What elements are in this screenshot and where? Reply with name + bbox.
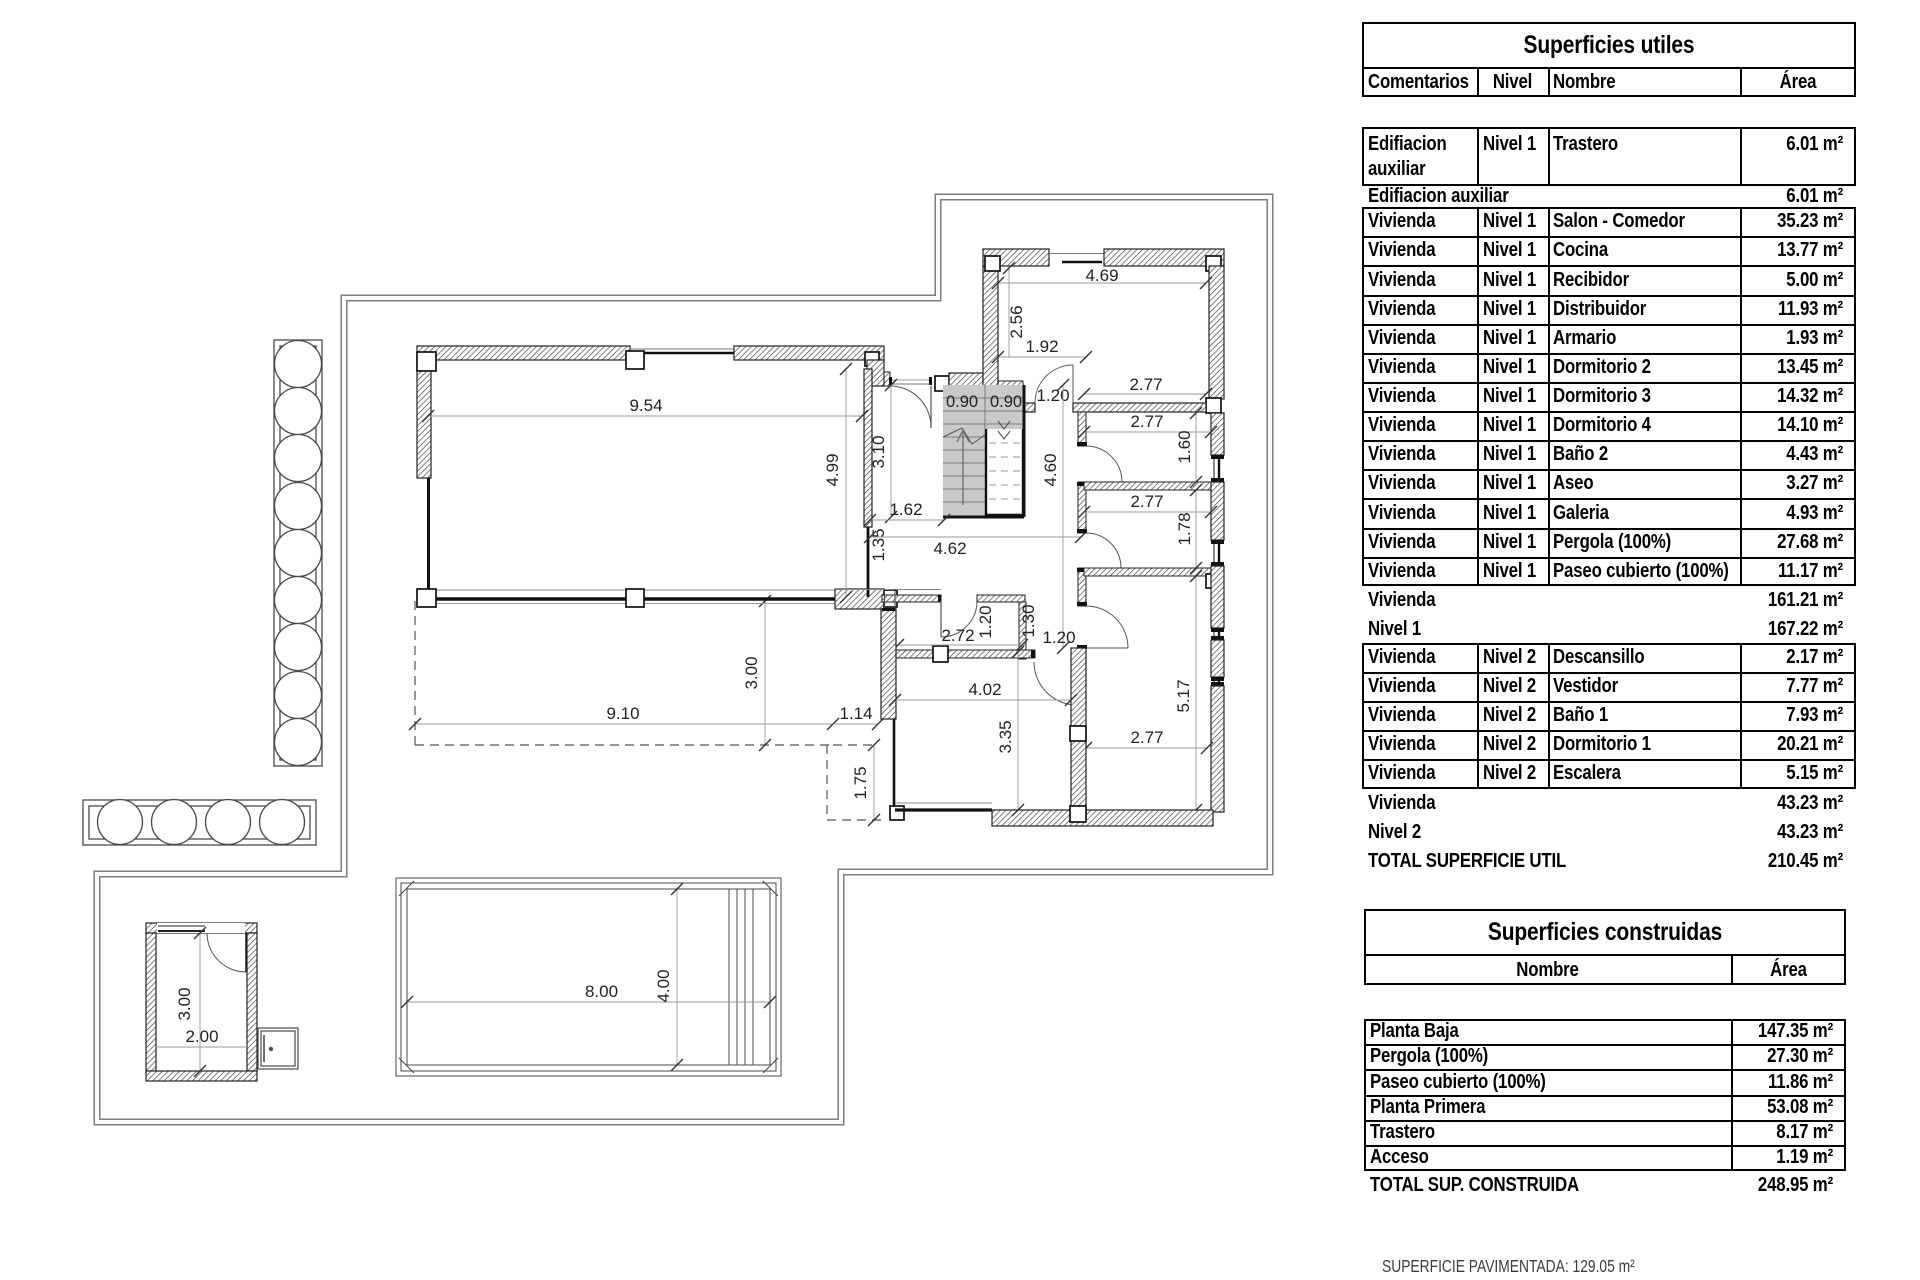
svg-text:4.69: 4.69 — [1085, 266, 1118, 285]
svg-text:4.02: 4.02 — [968, 680, 1001, 699]
svg-text:0.90: 0.90 — [990, 393, 1022, 411]
svg-text:1.20: 1.20 — [1036, 386, 1069, 405]
svg-text:2.72: 2.72 — [941, 626, 974, 645]
svg-text:2.77: 2.77 — [1130, 492, 1163, 511]
svg-text:1.30: 1.30 — [1019, 604, 1038, 637]
svg-text:1.20: 1.20 — [976, 605, 995, 638]
svg-text:4.62: 4.62 — [933, 539, 966, 558]
svg-text:9.54: 9.54 — [629, 396, 662, 415]
svg-text:1.78: 1.78 — [1175, 512, 1194, 545]
svg-text:1.92: 1.92 — [1025, 337, 1058, 356]
svg-text:1.14: 1.14 — [839, 704, 872, 723]
svg-text:5.17: 5.17 — [1174, 679, 1193, 712]
svg-text:4.00: 4.00 — [654, 969, 673, 1002]
svg-text:3.00: 3.00 — [742, 656, 761, 689]
svg-text:1.35: 1.35 — [869, 528, 888, 561]
svg-text:2.00: 2.00 — [185, 1027, 218, 1046]
svg-text:2.56: 2.56 — [1007, 305, 1026, 338]
svg-text:9.10: 9.10 — [606, 704, 639, 723]
svg-text:1.62: 1.62 — [889, 500, 922, 519]
svg-text:2.77: 2.77 — [1130, 412, 1163, 431]
svg-text:2.77: 2.77 — [1129, 375, 1162, 394]
svg-text:1.20: 1.20 — [1042, 628, 1075, 647]
svg-text:2.77: 2.77 — [1130, 728, 1163, 747]
svg-text:1.75: 1.75 — [851, 766, 870, 799]
svg-text:3.00: 3.00 — [175, 987, 194, 1020]
svg-text:4.60: 4.60 — [1041, 453, 1060, 486]
svg-text:3.35: 3.35 — [996, 720, 1015, 753]
svg-text:3.10: 3.10 — [869, 435, 888, 468]
svg-text:4.99: 4.99 — [823, 453, 842, 486]
svg-text:8.00: 8.00 — [585, 982, 618, 1001]
svg-text:0.90: 0.90 — [946, 393, 978, 411]
svg-text:1.60: 1.60 — [1175, 430, 1194, 463]
